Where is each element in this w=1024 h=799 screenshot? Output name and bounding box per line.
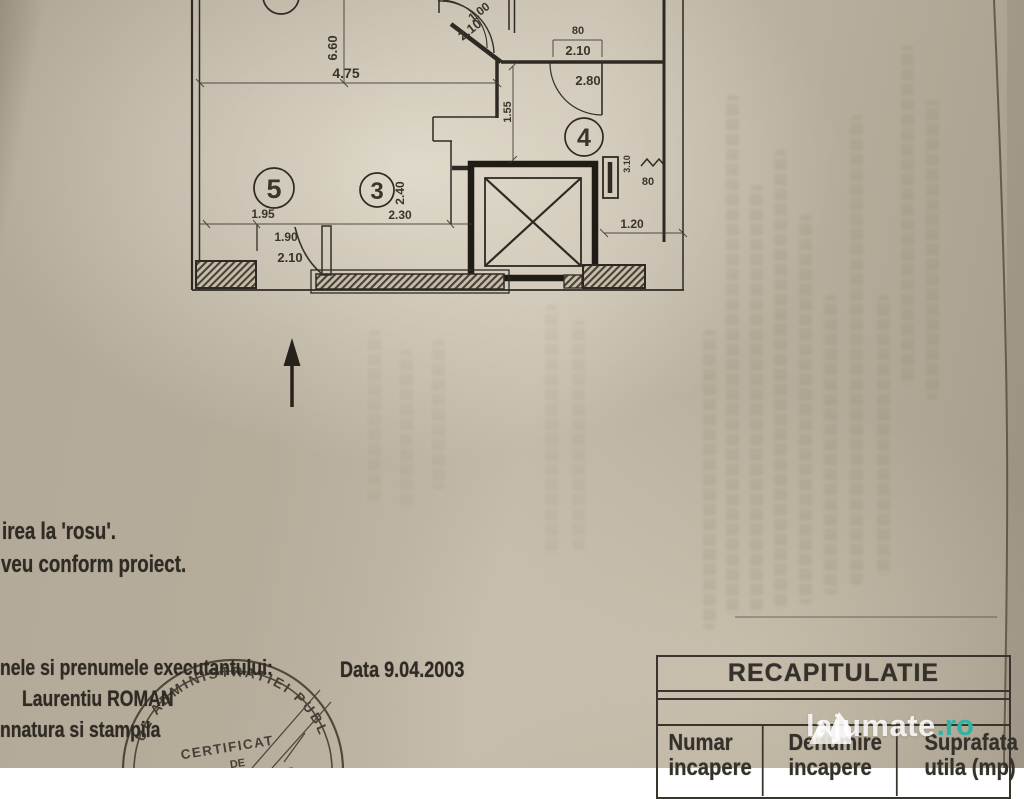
dim-80-door4: 80: [572, 25, 584, 37]
stamp-line-de: DE: [229, 757, 246, 768]
recap-col-numar: Numar incapere: [658, 726, 764, 796]
page-edge-line: [994, 0, 1007, 768]
dim-3-10: 3.10: [622, 155, 632, 173]
stamp-line-autorizare: AUTORIZARE: [207, 764, 297, 768]
door-pier: [322, 226, 331, 275]
note-line-proiect: veu conform proiect.: [1, 551, 186, 579]
dim-1-20: 1.20: [620, 217, 644, 231]
dim-1-55: 1.55: [502, 101, 514, 122]
recap-col1-line1: Numar: [669, 730, 762, 755]
floor-plan: 5 3 4 6.60 4.75 1.00 2.10 80 2.10 2.80 1…: [0, 0, 1024, 768]
break-line-symbol: [641, 159, 665, 166]
room-number-3: 3: [370, 178, 383, 205]
doors: [295, 0, 602, 275]
watermark-logo-icon: [806, 708, 858, 750]
dim-2-80: 2.80: [575, 73, 600, 88]
plan-walls: [192, 0, 684, 290]
room-circle-top-partial: [263, 0, 299, 14]
elevator-shaft: [471, 164, 595, 278]
room-number-5: 5: [266, 174, 281, 204]
dim-1-90: 1.90: [274, 230, 298, 244]
dim-2-10-door5: 2.10: [277, 250, 302, 265]
signature-label: nnatura si stampila: [0, 717, 160, 743]
dim-2-10-door4: 2.10: [565, 43, 590, 58]
dim-4-75: 4.75: [332, 65, 359, 81]
faint-horizontal-rule: [735, 616, 997, 618]
north-arrow: [284, 338, 301, 407]
note-line-rosu: irea la 'rosu'.: [2, 518, 116, 546]
window-element: [603, 157, 665, 198]
watermark-tld: .ro: [937, 710, 974, 743]
executor-label: nele si prenumele executantului:: [0, 655, 273, 681]
room-number-4: 4: [577, 124, 591, 152]
room-labels: [254, 0, 603, 208]
recap-table-title: RECAPITULATIE: [658, 657, 1009, 692]
room4-door-arc: [550, 63, 602, 115]
site-watermark: lajumate .ro: [806, 708, 974, 744]
date-note: Data 9.04.2003: [340, 657, 464, 683]
dim-80-window: 80: [642, 176, 654, 188]
dim-6-60: 6.60: [325, 35, 340, 60]
elevator-x-mark: [485, 178, 581, 266]
recap-thin-row: [658, 692, 1009, 700]
dim-2-40: 2.40: [393, 181, 407, 205]
dim-1-95: 1.95: [251, 207, 275, 221]
executor-name: Laurentiu ROMAN: [22, 686, 174, 712]
dim-2-30: 2.30: [388, 208, 412, 222]
